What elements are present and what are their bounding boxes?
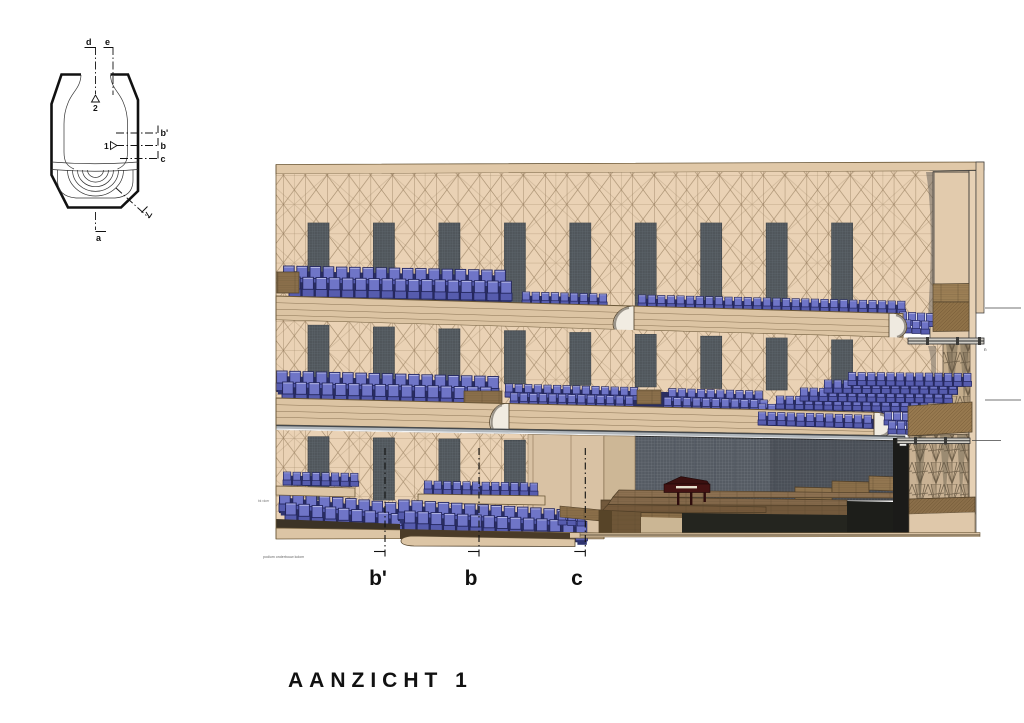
svg-text:b: b: [161, 141, 167, 151]
svg-text:b': b': [369, 567, 387, 590]
svg-text:e: e: [105, 37, 110, 47]
svg-text:AANZICHT 1: AANZICHT 1: [288, 669, 473, 692]
svg-text:b': b': [161, 128, 169, 138]
svg-text:c: c: [571, 567, 583, 590]
svg-text:b: b: [465, 567, 478, 590]
svg-text:1: 1: [104, 141, 109, 151]
svg-text:d: d: [86, 37, 92, 47]
svg-text:podium onderbouw kolom: podium onderbouw kolom: [263, 555, 304, 559]
svg-text:c: c: [161, 154, 166, 164]
svg-text:2: 2: [93, 103, 98, 113]
svg-text:bk vloer: bk vloer: [258, 499, 270, 503]
